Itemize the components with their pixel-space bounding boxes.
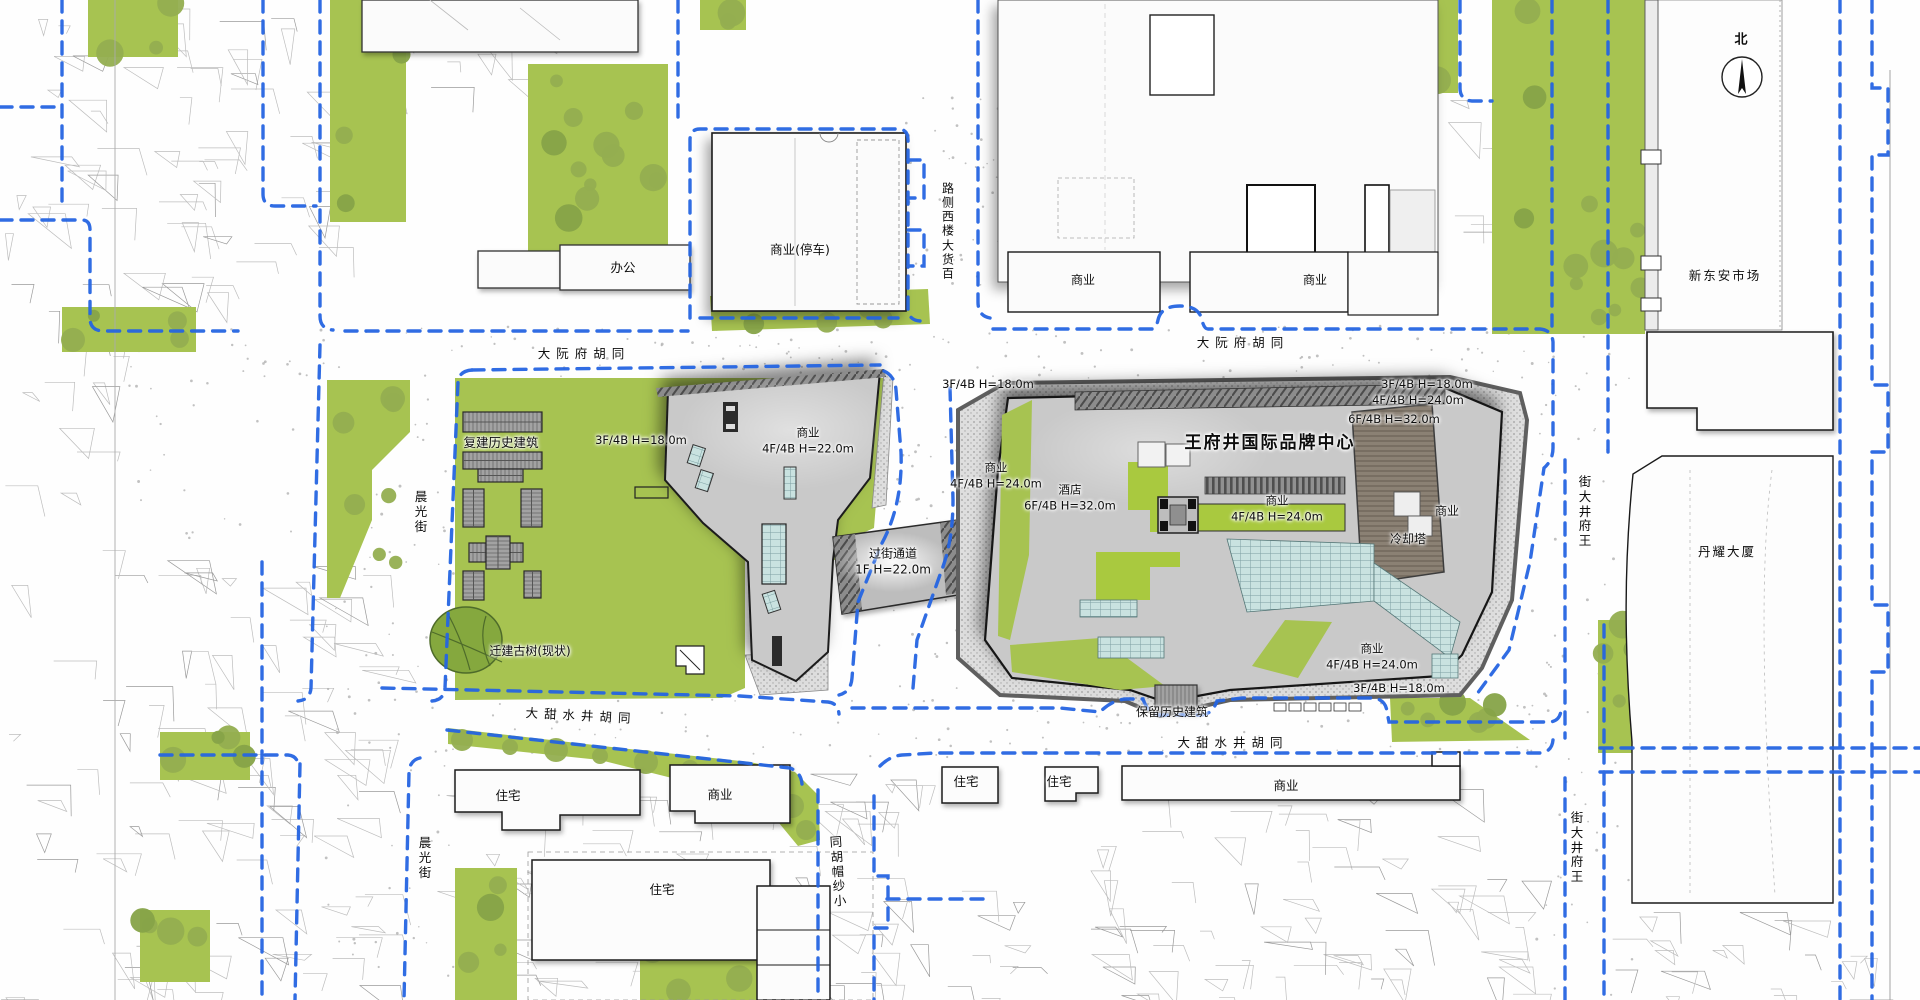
residential-building-4 xyxy=(532,860,770,960)
site-plan-canvas xyxy=(0,0,1920,1000)
stair-skylight xyxy=(762,524,786,584)
site-plan-map: 北 新东安市场 丹耀大厦 办公 商业(停车) 商业 商业 路 侧 西 楼 大 货… xyxy=(0,0,1920,1000)
relocated-ancient-tree-icon xyxy=(430,607,502,673)
commercial-parking-building xyxy=(712,133,906,311)
residential-building-2 xyxy=(942,767,998,803)
preserved-historic-building xyxy=(1155,685,1197,712)
commercial-band-east xyxy=(1190,252,1348,312)
commercial-band-west xyxy=(1008,252,1160,312)
elevator-core xyxy=(1158,497,1198,533)
department-store-building xyxy=(998,0,1438,315)
commercial-building-s2 xyxy=(1122,766,1460,800)
office-building xyxy=(560,245,690,290)
skylight-grid xyxy=(1227,539,1374,612)
right-site xyxy=(958,377,1527,716)
north-compass-icon xyxy=(1722,57,1762,97)
danyao-building xyxy=(1626,456,1833,903)
office-building-west xyxy=(478,251,560,288)
